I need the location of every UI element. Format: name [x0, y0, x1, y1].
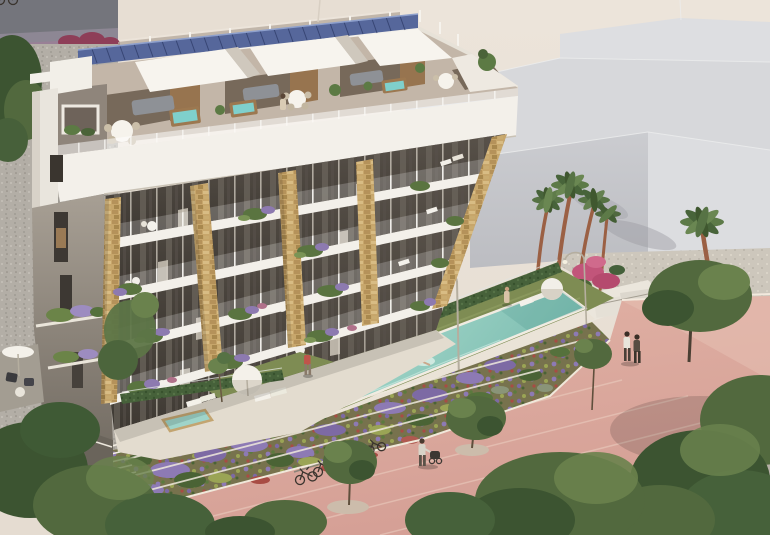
wood-slats	[56, 228, 66, 248]
architectural-render	[0, 0, 770, 535]
dining-table	[438, 73, 454, 89]
person-on-terrace	[280, 94, 286, 111]
chair	[24, 378, 34, 386]
table	[15, 387, 25, 397]
render-canvas	[0, 0, 770, 535]
tower-window	[50, 155, 63, 182]
neighbour-terrace	[0, 344, 44, 412]
core-planter	[64, 125, 80, 135]
chair	[5, 372, 17, 383]
